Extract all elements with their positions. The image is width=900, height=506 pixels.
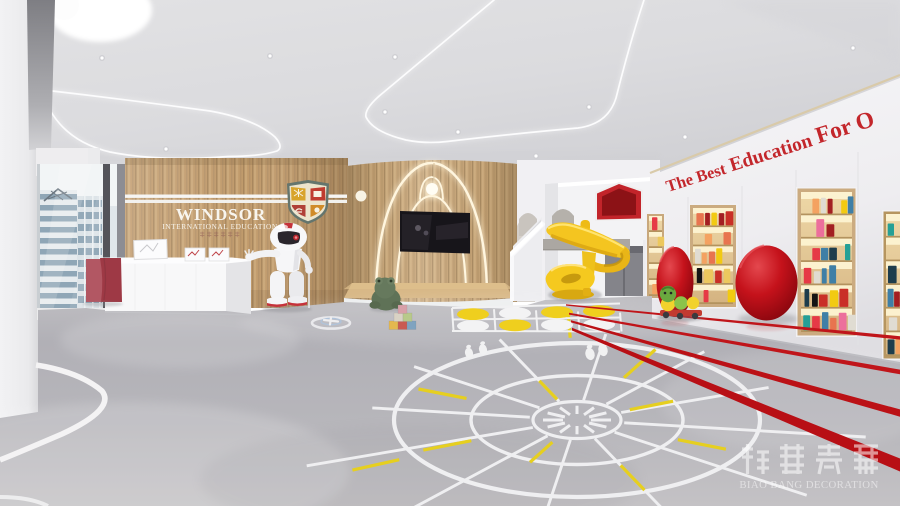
svg-text:INTERNATIONAL EDUCATION: INTERNATIONAL EDUCATION [162, 222, 278, 231]
svg-text:BIAO BANG DECORATION: BIAO BANG DECORATION [739, 479, 878, 491]
